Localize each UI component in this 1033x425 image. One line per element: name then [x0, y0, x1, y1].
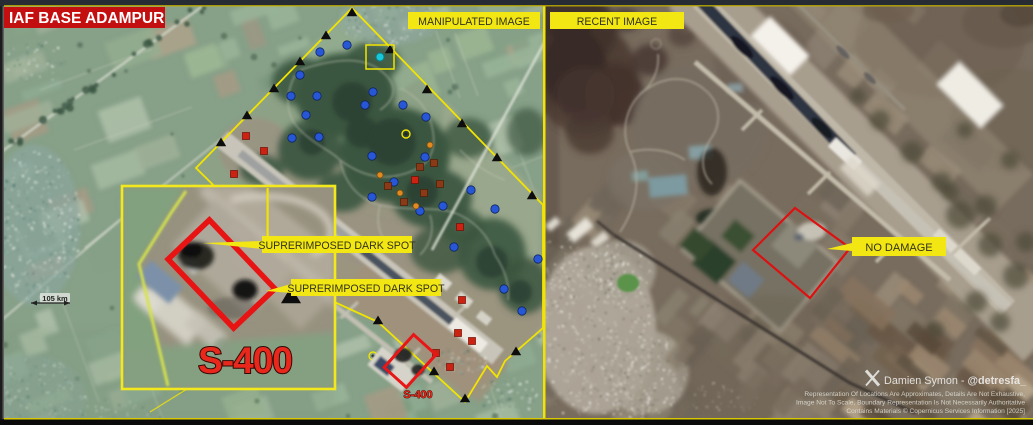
svg-text:NO DAMAGE: NO DAMAGE [865, 242, 932, 254]
svg-text:Representation Of Locations Ar: Representation Of Locations Are Approxim… [804, 391, 1025, 398]
svg-text:S-400: S-400 [198, 340, 292, 381]
svg-text:SUPRERIMPOSED DARK SPOT: SUPRERIMPOSED DARK SPOT [287, 283, 445, 295]
svg-text:IAF BASE ADAMPUR: IAF BASE ADAMPUR [9, 10, 164, 27]
svg-text:MANIPULATED IMAGE: MANIPULATED IMAGE [418, 16, 530, 28]
svg-text:Damien Symon - @detresfa_: Damien Symon - @detresfa_ [884, 375, 1027, 387]
svg-text:Contains Materials © Copernicu: Contains Materials © Copernicus Services… [846, 407, 1025, 415]
svg-text:SUPRERIMPOSED DARK SPOT: SUPRERIMPOSED DARK SPOT [258, 240, 416, 252]
svg-text:Image Not To Scale, Boundary R: Image Not To Scale, Boundary Representat… [796, 400, 1025, 407]
svg-text:S-400: S-400 [403, 389, 432, 401]
svg-text:RECENT IMAGE: RECENT IMAGE [577, 16, 657, 28]
